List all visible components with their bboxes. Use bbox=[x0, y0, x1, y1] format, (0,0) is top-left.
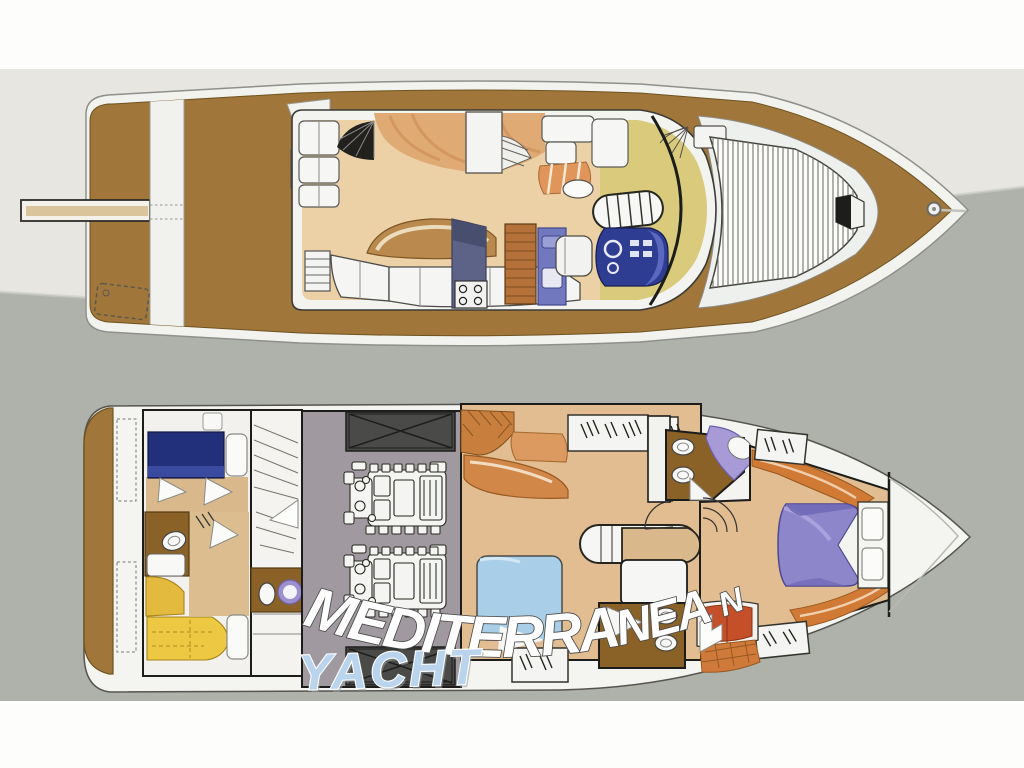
svg-text:YACHT: YACHT bbox=[297, 639, 484, 701]
